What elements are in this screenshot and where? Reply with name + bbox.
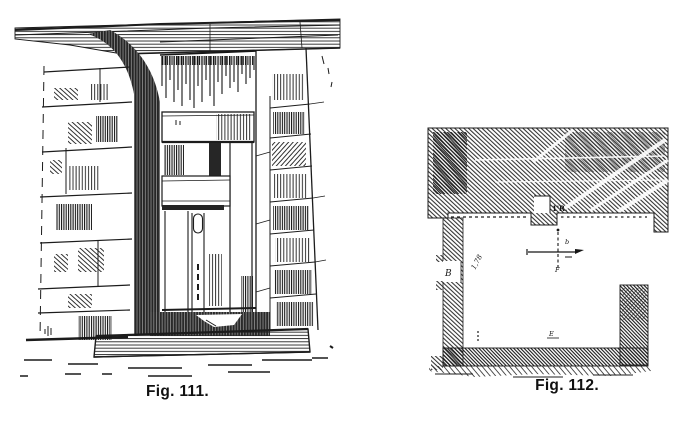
- cornice: [15, 19, 340, 54]
- measure-label-left: 1,78: [470, 253, 485, 271]
- cross-lower-label: F: [554, 266, 560, 274]
- survey-cross: b F: [527, 229, 584, 274]
- bottom-wall: [429, 348, 651, 377]
- fig111-drawing: [10, 8, 345, 380]
- scanned-book-page: Fig. 111.: [0, 0, 700, 421]
- fig111-caption: Fig. 111.: [10, 383, 345, 401]
- false-door: [162, 112, 256, 330]
- fig112-caption: Fig. 112.: [432, 377, 700, 395]
- bottom-room-marks: E: [477, 330, 559, 341]
- left-masonry: [26, 66, 132, 340]
- bottom-mark-label: E: [548, 330, 554, 338]
- left-wall: B: [436, 218, 463, 366]
- recess-fringe: [160, 51, 256, 108]
- cross-upper-label: b: [565, 238, 569, 246]
- niche-label: B: [444, 269, 452, 279]
- figure-112: 1'R. B: [415, 118, 685, 378]
- measure-label-top: 1'R.: [552, 204, 567, 213]
- cross-arrowhead: [575, 249, 584, 254]
- right-masonry: [256, 48, 332, 330]
- fig112-drawing: 1'R. B: [415, 118, 685, 378]
- figure-111: [10, 8, 345, 380]
